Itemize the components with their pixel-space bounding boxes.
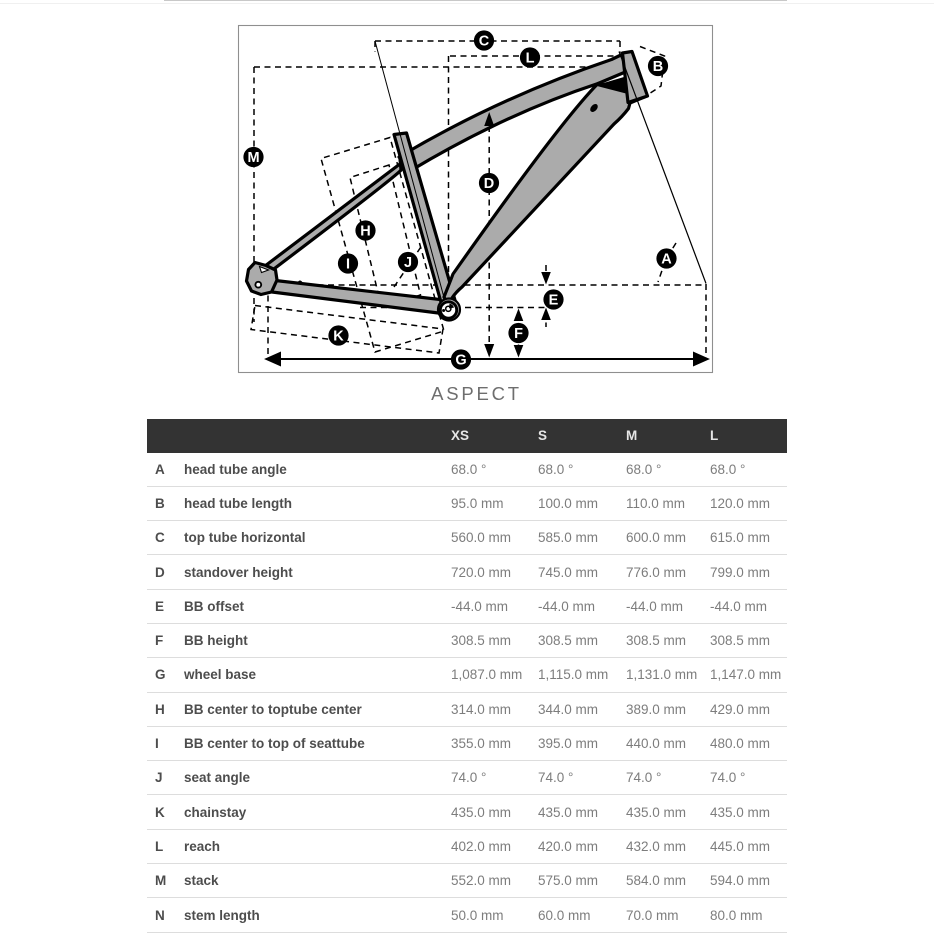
svg-text:A: A <box>661 252 672 268</box>
svg-text:E: E <box>549 293 559 309</box>
svg-text:B: B <box>653 59 663 75</box>
svg-text:J: J <box>404 255 412 271</box>
svg-text:H: H <box>360 224 370 240</box>
svg-text:L: L <box>526 51 535 67</box>
svg-text:D: D <box>484 176 494 192</box>
svg-text:F: F <box>514 326 523 342</box>
svg-text:C: C <box>479 34 490 50</box>
svg-text:G: G <box>455 353 466 369</box>
svg-text:K: K <box>333 329 344 345</box>
svg-text:M: M <box>247 150 259 166</box>
svg-text:I: I <box>346 257 350 273</box>
